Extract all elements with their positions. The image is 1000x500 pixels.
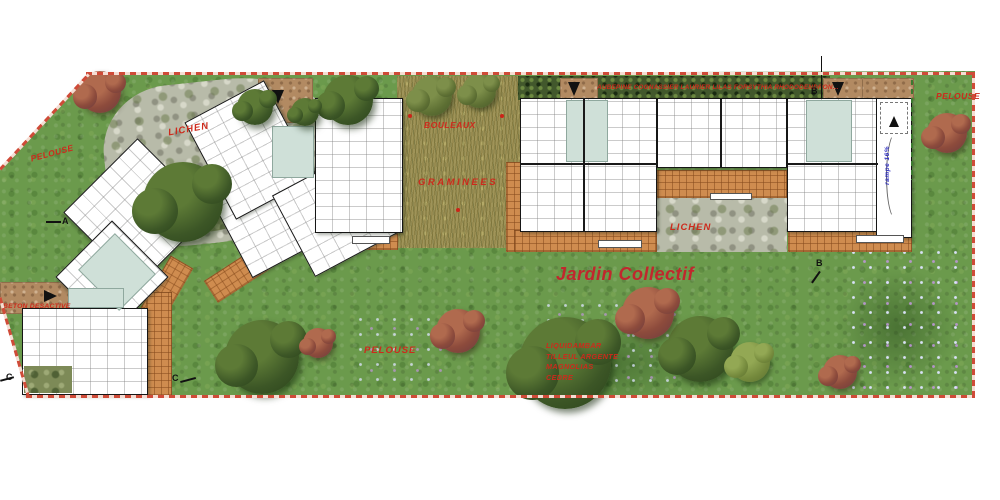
tree-birch — [462, 74, 496, 108]
label-beton-desactive: BETON DESACTIVE — [3, 303, 70, 310]
tree-birch — [412, 76, 452, 116]
ramp-label: rampe 16% — [884, 146, 891, 185]
boundary-bottom — [26, 395, 975, 398]
stair-core — [272, 126, 314, 178]
boundary-top — [86, 72, 975, 75]
section-line-b — [821, 56, 822, 98]
stair-core — [68, 288, 124, 308]
entry-arrow-icon — [568, 82, 580, 96]
survey-dot — [500, 114, 504, 118]
stair-core — [806, 100, 852, 162]
tree-dark — [667, 316, 733, 382]
bench — [856, 235, 904, 243]
tree-dark — [237, 89, 273, 125]
section-marker-c-right: C — [172, 373, 179, 383]
party-wall — [720, 98, 722, 168]
label-pelouse-bottom: PELOUSE — [364, 345, 416, 356]
moss-terrace — [24, 366, 72, 393]
flower-speckles — [845, 245, 970, 390]
shrub-red — [622, 287, 674, 339]
party-wall — [520, 163, 657, 165]
bench — [352, 236, 390, 244]
planting-list-item: TILLEUL ARGENTE — [546, 352, 618, 363]
label-jardin-collectif: Jardin Collectif — [556, 264, 694, 285]
boundary-right — [972, 72, 975, 397]
label-graminees: GRAMINEES — [418, 177, 498, 188]
building-mid-center-band — [657, 98, 787, 168]
planting-list: LIQUIDAMBAR TILLEUL ARGENTE MAGNOLIAS CE… — [546, 341, 618, 383]
party-wall — [583, 98, 585, 232]
planting-list-item: CEDRE — [546, 373, 618, 384]
bench — [710, 193, 752, 200]
survey-dot — [408, 114, 412, 118]
section-marker-b-bottom: B — [816, 258, 823, 268]
tree-dark — [323, 75, 373, 125]
planting-list-item: LIQUIDAMBAR — [546, 341, 618, 352]
tile-path — [146, 292, 172, 396]
tree-dark — [225, 320, 299, 394]
label-bouleaux: BOULEAUX — [424, 120, 476, 130]
ramp-arrow-icon — [889, 116, 899, 127]
entry-walkway — [862, 78, 914, 99]
site-plan-canvas: rampe 16% PELOUSE LICHEN BOULEAUX GRAMIN… — [0, 0, 1000, 500]
shrub-red — [436, 309, 480, 353]
tree-dark — [291, 98, 319, 126]
stair-core — [566, 100, 608, 162]
shrub-red — [927, 113, 967, 153]
hedge-limit-line — [911, 80, 913, 180]
shrub-red — [303, 328, 333, 358]
section-marker-b-top: B — [811, 86, 818, 96]
section-marker-a: A — [62, 216, 69, 226]
entry-arrow-icon — [44, 290, 57, 302]
tree-light — [730, 342, 770, 382]
section-line-a — [46, 221, 61, 223]
planting-list-item: MAGNOLIAS — [546, 362, 618, 373]
party-wall — [787, 163, 878, 165]
label-lichen-courtyard: LICHEN — [670, 222, 711, 233]
shrub-red — [823, 355, 857, 389]
label-hedge-species: AUBEPINE COGNASSIER LAURIER LILAS FORSYT… — [597, 84, 839, 91]
survey-dot — [456, 208, 460, 212]
tree-dark — [143, 162, 223, 242]
bench — [598, 240, 642, 248]
